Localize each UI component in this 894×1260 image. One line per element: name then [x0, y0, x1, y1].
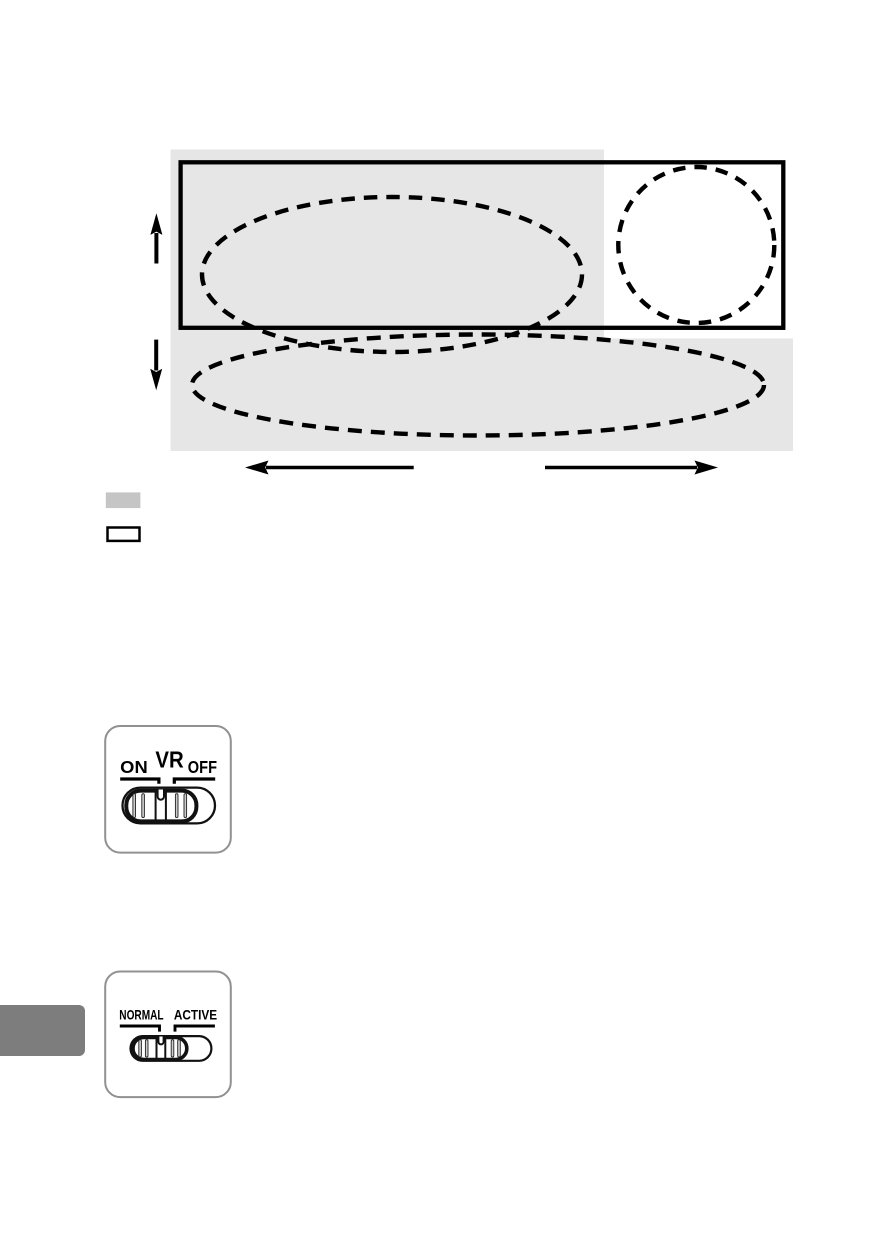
svg-text:NORMAL: NORMAL [119, 1007, 164, 1023]
svg-text:VR: VR [155, 747, 183, 773]
svg-text:OFF: OFF [188, 757, 217, 777]
svg-text:ON: ON [120, 757, 148, 777]
svg-text:ACTIVE: ACTIVE [174, 1007, 217, 1023]
